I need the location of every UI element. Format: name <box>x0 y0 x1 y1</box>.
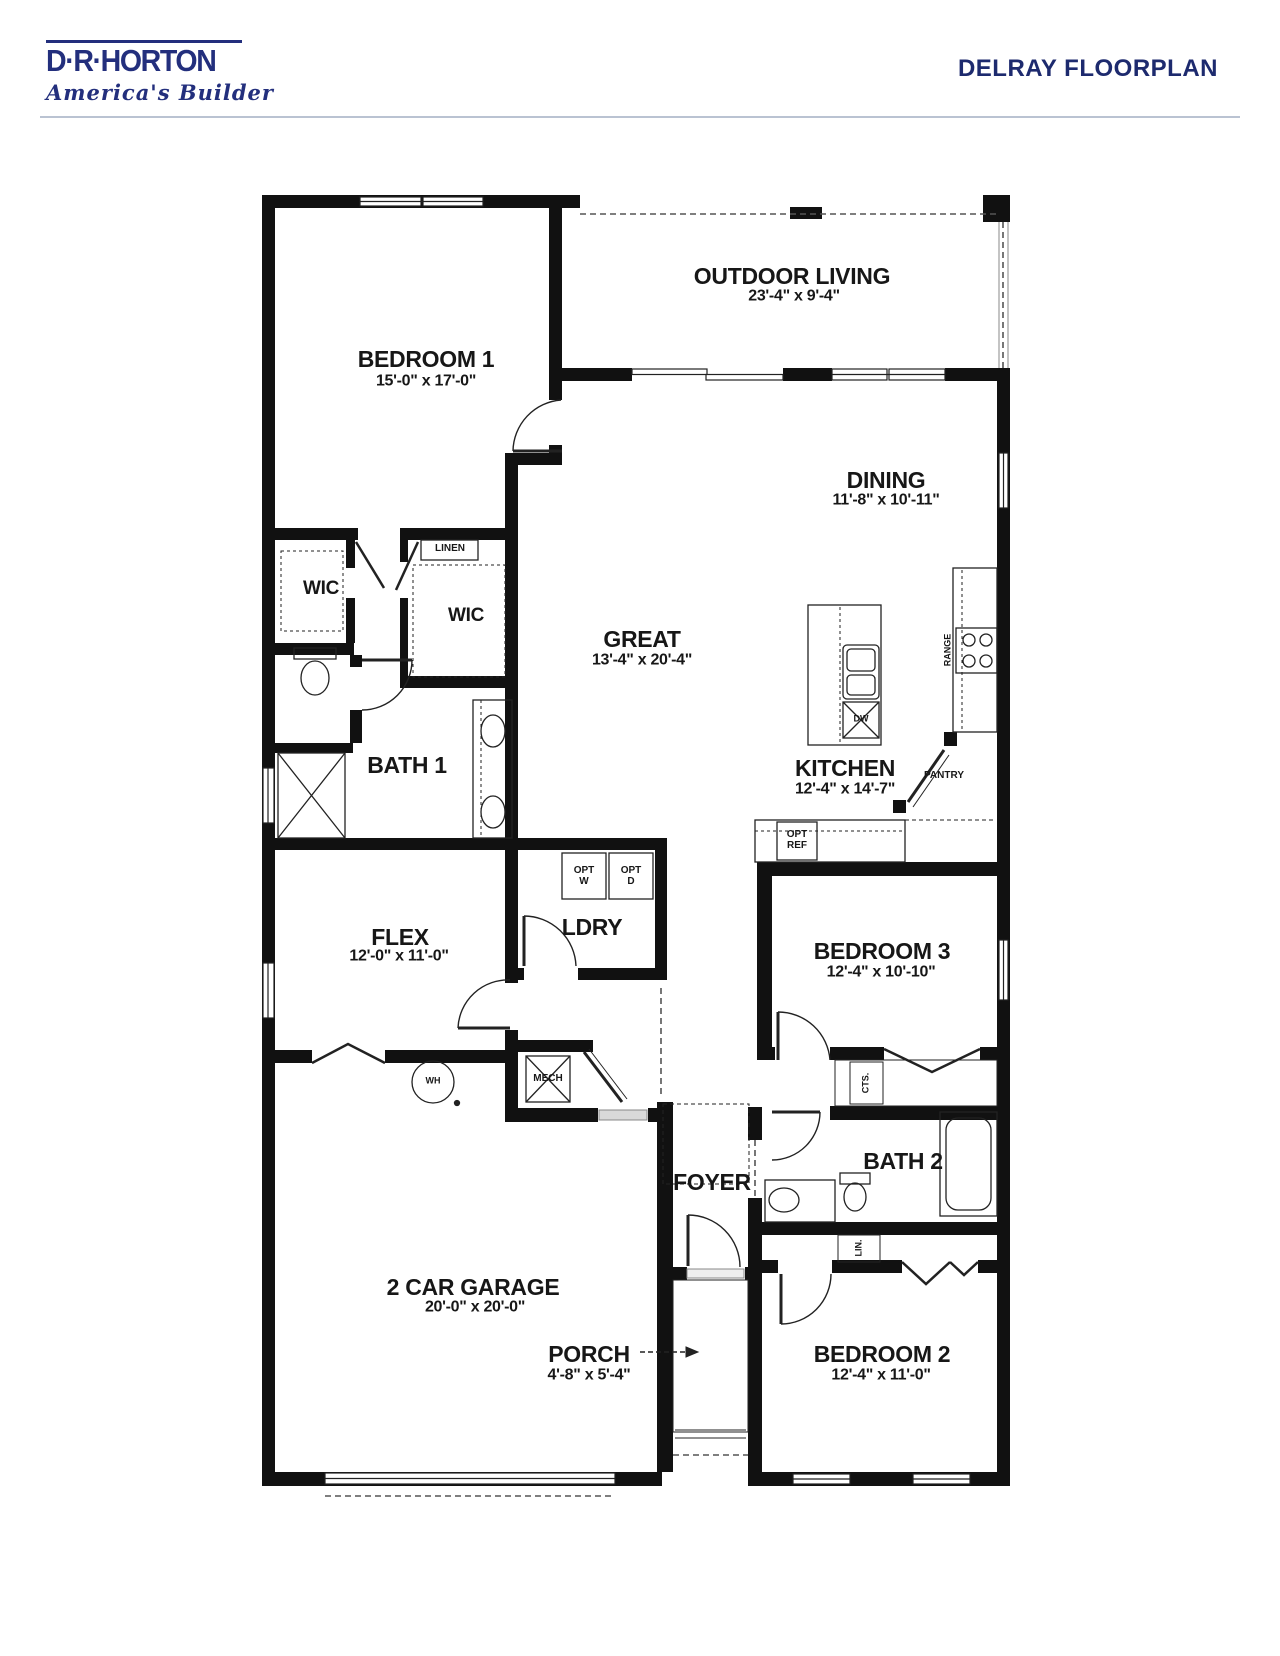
room-dims-great: 13'-4" x 20'-4" <box>592 653 692 670</box>
room-label-bedroom-1: BEDROOM 1 <box>358 347 495 371</box>
room-label-dining: DINING <box>847 468 926 492</box>
room-label-bedroom-3: BEDROOM 3 <box>814 939 951 963</box>
label-opt-dryer: OPTD <box>621 865 642 887</box>
room-label-flex: FLEX <box>371 925 429 949</box>
room-dims-kitchen: 12'-4" x 14'-7" <box>795 782 895 799</box>
room-label-outdoor-living: OUTDOOR LIVING <box>694 264 890 288</box>
floorplan-drawing <box>250 185 1020 1515</box>
room-dims-outdoor-living: 23'-4" x 9'-4" <box>748 289 840 306</box>
label-linen-closet: LIN. <box>854 1240 863 1257</box>
room-label-laundry: LDRY <box>562 915 623 939</box>
room-label-porch: PORCH <box>548 1342 630 1366</box>
room-dims-dining: 11'-8" x 10'-11" <box>833 493 940 510</box>
page-title: DELRAY FLOORPLAN <box>958 55 1218 83</box>
room-dims-flex: 12'-0" x 11'-0" <box>349 949 448 966</box>
label-coats-closet: CTS. <box>861 1073 870 1094</box>
room-label-kitchen: KITCHEN <box>795 756 895 780</box>
walls <box>262 195 1010 1486</box>
room-dims-bedroom-2: 12'-4" x 11'-0" <box>831 1368 930 1385</box>
label-mech: MECH <box>533 1074 562 1085</box>
fixtures <box>278 540 997 1438</box>
room-label-great: GREAT <box>603 627 680 651</box>
room-label-wic-left: WIC <box>303 579 339 599</box>
floorplan: BEDROOM 1 15'-0" x 17'-0" OUTDOOR LIVING… <box>250 185 1020 1515</box>
room-label-bath-1: BATH 1 <box>367 753 447 777</box>
room-label-bath-2: BATH 2 <box>863 1149 943 1173</box>
page: D·R·HORTON America's Builder DELRAY FLOO… <box>0 0 1280 1656</box>
header-divider <box>40 116 1240 118</box>
room-label-foyer: FOYER <box>673 1170 751 1194</box>
label-opt-refrigerator: OPTREF <box>787 829 808 851</box>
label-pantry: PANTRY <box>924 771 964 782</box>
label-linen: LINEN <box>435 544 465 555</box>
room-label-wic-right: WIC <box>448 606 484 626</box>
room-dims-garage: 20'-0" x 20'-0" <box>425 1300 525 1317</box>
room-dims-bedroom-3: 12'-4" x 10'-10" <box>827 965 936 982</box>
label-range: RANGE <box>943 634 952 667</box>
room-label-bedroom-2: BEDROOM 2 <box>814 1342 951 1366</box>
drhorton-logo: D·R·HORTON America's Builder <box>46 40 256 105</box>
logo-name: D·R·HORTON <box>46 45 239 78</box>
room-dims-bedroom-1: 15'-0" x 17'-0" <box>376 374 476 391</box>
label-dishwasher: DW <box>854 714 869 723</box>
label-opt-washer: OPTW <box>574 865 595 887</box>
room-label-garage: 2 CAR GARAGE <box>387 1275 560 1299</box>
logo-tagline: America's Builder <box>46 80 256 105</box>
label-water-heater: WH <box>426 1076 441 1085</box>
room-dims-porch: 4'-8" x 5'-4" <box>548 1368 631 1385</box>
